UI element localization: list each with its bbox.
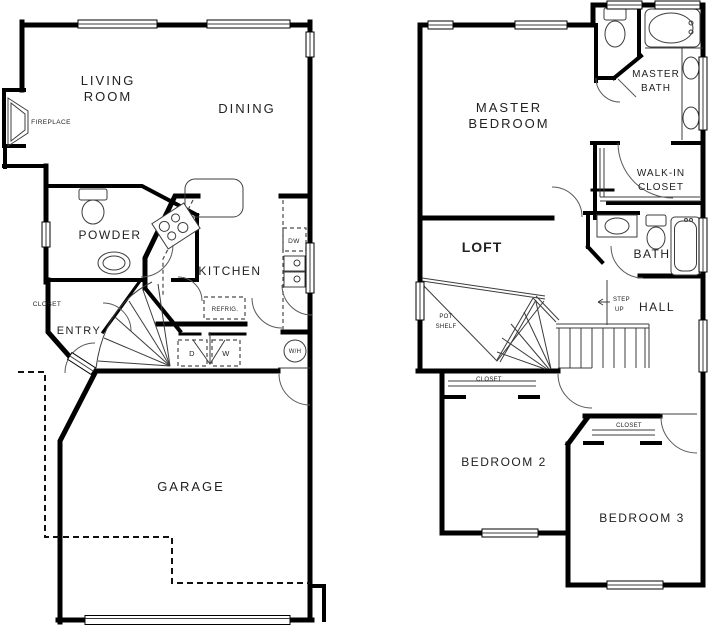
label-powder: POWDER bbox=[79, 228, 142, 242]
label-bedroom2: BEDROOM 2 bbox=[461, 455, 547, 469]
label-master-bath-line1: MASTER bbox=[632, 69, 680, 80]
label-entry: ENTRY bbox=[57, 325, 102, 337]
stairs-up-arrow bbox=[193, 332, 225, 364]
label-bedroom3: BEDROOM 3 bbox=[599, 511, 685, 525]
label-master-bedroom-line1: MASTER bbox=[476, 100, 542, 115]
label-refrigerator: REFRIG. bbox=[212, 307, 238, 313]
bathtub bbox=[671, 217, 700, 275]
label-kitchen: KITCHEN bbox=[198, 264, 261, 278]
label-dishwasher: DW bbox=[288, 238, 300, 245]
label-master-bedroom-line2: BEDROOM bbox=[468, 116, 549, 131]
stair-railing bbox=[556, 324, 649, 328]
floor2-plan: MASTER BEDROOM MASTER BATH WALK-IN CLOSE… bbox=[416, 1, 707, 589]
bath-toilet bbox=[646, 215, 666, 249]
label-fireplace: FIREPLACE bbox=[31, 119, 71, 126]
label-master-bath-line2: BATH bbox=[641, 83, 671, 94]
label-living-room-line2: ROOM bbox=[84, 89, 132, 104]
floor1-windows bbox=[42, 20, 314, 293]
master-bathtub bbox=[645, 9, 703, 48]
floorplan-page: LIVING ROOM DINING FIREPLACE POWDER CLOS… bbox=[0, 0, 708, 628]
label-step-up-line2: UP bbox=[615, 307, 624, 313]
pot-shelf-marker bbox=[422, 284, 544, 361]
fireplace bbox=[8, 98, 28, 146]
step-up-marker bbox=[598, 280, 610, 325]
label-hall: HALL bbox=[639, 300, 675, 314]
label-dryer: D bbox=[189, 349, 195, 358]
floor1-plan: LIVING ROOM DINING FIREPLACE POWDER CLOS… bbox=[4, 20, 324, 625]
label-pot-shelf-line2: SHELF bbox=[436, 324, 457, 330]
label-closet-bedroom2: CLOSET bbox=[476, 377, 502, 383]
front-door bbox=[68, 353, 96, 375]
label-living-room-line1: LIVING bbox=[81, 73, 136, 88]
label-garage: GARAGE bbox=[157, 479, 225, 494]
label-walk-in-closet-line1: WALK-IN bbox=[637, 168, 685, 179]
label-loft: LOFT bbox=[462, 239, 503, 255]
loft-ledge-line bbox=[422, 278, 545, 299]
label-closet-floor1: CLOSET bbox=[33, 301, 61, 308]
floorplan-canvas: LIVING ROOM DINING FIREPLACE POWDER CLOS… bbox=[0, 0, 708, 628]
label-dining: DINING bbox=[218, 101, 276, 116]
stove bbox=[152, 203, 200, 249]
bedroom3-closet-shelves bbox=[592, 430, 655, 435]
master-toilet bbox=[604, 8, 626, 47]
kitchen-sink bbox=[284, 256, 305, 287]
powder-sink bbox=[98, 252, 130, 274]
label-closet-bedroom3: CLOSET bbox=[616, 423, 642, 429]
label-bath: BATH bbox=[633, 247, 670, 261]
bath-sink bbox=[597, 215, 637, 237]
master-vanity-sinks bbox=[682, 48, 699, 140]
label-pot-shelf-line1: POT bbox=[439, 314, 452, 320]
label-step-up-line1: STEP bbox=[613, 297, 630, 303]
label-water-heater: W/H bbox=[289, 349, 302, 355]
label-walk-in-closet-line2: CLOSET bbox=[638, 182, 684, 193]
label-washer: W bbox=[222, 349, 230, 358]
powder-toilet bbox=[79, 189, 107, 224]
garage-door bbox=[85, 616, 290, 625]
